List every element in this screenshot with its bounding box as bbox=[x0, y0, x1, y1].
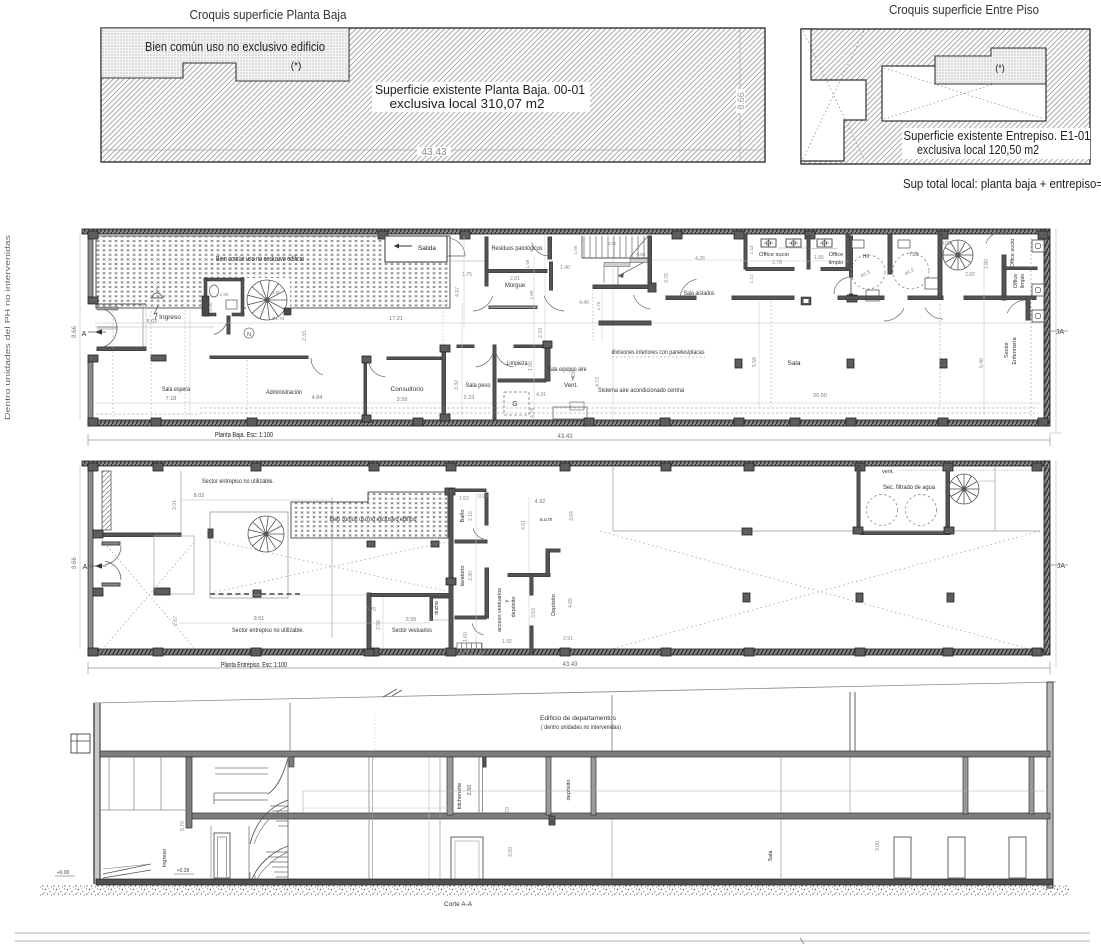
svg-text:3.55: 3.55 bbox=[406, 617, 417, 623]
svg-text:4.65: 4.65 bbox=[568, 598, 574, 608]
svg-text:4.31: 4.31 bbox=[536, 392, 546, 398]
svg-text:0.70: 0.70 bbox=[505, 807, 511, 817]
svg-text:1.40: 1.40 bbox=[560, 265, 570, 271]
svg-text:Vent.: Vent. bbox=[564, 383, 578, 389]
svg-text:5.02: 5.02 bbox=[147, 319, 158, 325]
svg-text:+0.00: +0.00 bbox=[57, 870, 70, 876]
svg-text:Enfermería: Enfermería bbox=[1012, 336, 1018, 364]
svg-text:ø1.5: ø1.5 bbox=[904, 267, 916, 277]
svg-text:Planta Entrepiso. Esc: 1:100: Planta Entrepiso. Esc: 1:100 bbox=[221, 662, 287, 669]
svg-text:2.33: 2.33 bbox=[538, 328, 544, 338]
svg-text:ducha: ducha bbox=[434, 601, 440, 615]
svg-text:2.50: 2.50 bbox=[467, 785, 473, 796]
svg-text:1.00: 1.00 bbox=[573, 245, 578, 254]
svg-text:2.78: 2.78 bbox=[772, 260, 782, 266]
svg-text:N: N bbox=[247, 332, 251, 338]
svg-text:2.91: 2.91 bbox=[563, 636, 573, 642]
svg-text:limpio: limpio bbox=[829, 260, 843, 266]
svg-text:0.80: 0.80 bbox=[272, 290, 281, 295]
svg-text:(*): (*) bbox=[995, 63, 1005, 73]
svg-text:Office sucio: Office sucio bbox=[759, 252, 789, 258]
svg-text:43.43: 43.43 bbox=[557, 434, 573, 440]
svg-text:4.84: 4.84 bbox=[312, 395, 323, 401]
svg-text:7.18: 7.18 bbox=[166, 396, 177, 402]
svg-text:3.00: 3.00 bbox=[508, 847, 514, 857]
svg-text:Ingreso: Ingreso bbox=[162, 849, 168, 867]
svg-text:2.59: 2.59 bbox=[376, 620, 382, 630]
svg-text:Croquis superficie Planta Baja: Croquis superficie Planta Baja bbox=[190, 7, 348, 22]
svg-text:Sala aislados: Sala aislados bbox=[684, 291, 715, 297]
svg-text:Sector vestuarios: Sector vestuarios bbox=[392, 627, 433, 634]
svg-text:Sec. filtrado de agua: Sec. filtrado de agua bbox=[883, 485, 936, 491]
svg-text:acceso vestuarios: acceso vestuarios bbox=[497, 588, 503, 632]
svg-text:3.76: 3.76 bbox=[664, 273, 670, 283]
svg-text:4.26: 4.26 bbox=[695, 256, 705, 262]
svg-text:1.50: 1.50 bbox=[528, 361, 534, 371]
svg-text:1.80: 1.80 bbox=[220, 292, 229, 297]
svg-text:2.23: 2.23 bbox=[464, 395, 475, 401]
svg-text:A: A bbox=[82, 331, 87, 338]
svg-text:7.25: 7.25 bbox=[909, 252, 919, 258]
svg-text:4.72: 4.72 bbox=[595, 377, 601, 387]
svg-text:Residuos patológicos: Residuos patológicos bbox=[492, 246, 543, 252]
svg-text:ø1.5: ø1.5 bbox=[860, 269, 872, 279]
svg-text:3.32: 3.32 bbox=[454, 380, 460, 390]
svg-text:43.43: 43.43 bbox=[421, 147, 446, 158]
svg-text:1.53: 1.53 bbox=[459, 496, 469, 502]
svg-text:Corte A-A: Corte A-A bbox=[444, 901, 473, 908]
svg-text:3.00: 3.00 bbox=[875, 841, 881, 851]
svg-text:depósito: depósito bbox=[511, 597, 517, 618]
svg-text:Bien común uso no exclusivo ed: Bien común uso no exclusivo edificio bbox=[216, 256, 304, 263]
svg-text:1.75: 1.75 bbox=[596, 301, 601, 310]
svg-text:4.40: 4.40 bbox=[579, 300, 589, 306]
svg-text:1.21: 1.21 bbox=[749, 274, 754, 283]
svg-text:vent.: vent. bbox=[882, 469, 894, 475]
svg-text:4.92: 4.92 bbox=[535, 499, 546, 505]
svg-text:43.43: 43.43 bbox=[562, 662, 578, 668]
svg-text:3.53: 3.53 bbox=[531, 608, 537, 618]
svg-text:4.97: 4.97 bbox=[455, 287, 461, 297]
svg-text:Depósito: Depósito bbox=[551, 594, 557, 616]
svg-text:2.33: 2.33 bbox=[302, 331, 308, 341]
svg-text:1.43: 1.43 bbox=[749, 245, 754, 254]
svg-text:Dentro unidades del PH no inte: Dentro unidades del PH no intervenidas bbox=[3, 235, 12, 420]
svg-text:0.70: 0.70 bbox=[366, 607, 376, 613]
svg-text:8.66: 8.66 bbox=[72, 557, 78, 569]
svg-text:0.90: 0.90 bbox=[478, 494, 488, 500]
svg-text:2.89: 2.89 bbox=[984, 259, 990, 269]
svg-text:JA: JA bbox=[1056, 329, 1065, 336]
svg-text:3.30: 3.30 bbox=[468, 571, 474, 581]
svg-text:H6: H6 bbox=[863, 254, 870, 260]
svg-text:1.60: 1.60 bbox=[463, 632, 469, 642]
svg-text:Sector entrepiso no utilizable: Sector entrepiso no utilizable. bbox=[232, 627, 304, 634]
svg-text:( dentro unidades no interveni: ( dentro unidades no intervenidas) bbox=[541, 725, 621, 731]
svg-text:kitchenette: kitchenette bbox=[457, 783, 463, 810]
svg-text:1.75: 1.75 bbox=[462, 272, 472, 278]
svg-text:a.u.m: a.u.m bbox=[540, 517, 553, 523]
svg-text:limpio: limpio bbox=[1020, 274, 1026, 288]
svg-text:17.21: 17.21 bbox=[389, 316, 403, 322]
svg-text:JA: JA bbox=[1057, 563, 1066, 570]
svg-text:Sala: Sala bbox=[768, 850, 774, 862]
svg-text:Office sucio: Office sucio bbox=[1010, 239, 1016, 268]
svg-text:8.66: 8.66 bbox=[72, 326, 78, 338]
svg-text:Consultorio: Consultorio bbox=[391, 386, 424, 393]
svg-text:8.66: 8.66 bbox=[736, 92, 746, 110]
svg-text:3.00: 3.00 bbox=[608, 241, 617, 246]
svg-text:G: G bbox=[512, 401, 517, 408]
svg-text:exclusiva local 310,07 m2: exclusiva local 310,07 m2 bbox=[390, 96, 545, 111]
svg-text:Bien común uso no exclusivo ed: Bien común uso no exclusivo edificio bbox=[330, 516, 417, 523]
svg-text:divisiones interiores con pane: divisiones interiores con paneles/placas bbox=[612, 350, 705, 356]
svg-text:0.80: 0.80 bbox=[637, 252, 646, 257]
svg-text:Limpieza: Limpieza bbox=[507, 360, 528, 367]
svg-text:Superficie existente Planta Ba: Superficie existente Planta Baja. 00-01 bbox=[375, 82, 585, 97]
svg-text:Ø1.70: Ø1.70 bbox=[272, 316, 285, 321]
svg-text:Sistema aire acondicionado cen: Sistema aire acondicionado central bbox=[598, 388, 684, 394]
svg-text:Sala: Sala bbox=[787, 360, 800, 367]
svg-text:2.81: 2.81 bbox=[510, 276, 520, 282]
svg-text:5.70: 5.70 bbox=[180, 821, 186, 831]
svg-text:(*): (*) bbox=[291, 61, 302, 72]
svg-text:+0.28: +0.28 bbox=[177, 868, 190, 874]
svg-text:3.59: 3.59 bbox=[397, 397, 408, 403]
svg-text:3.64: 3.64 bbox=[569, 511, 575, 521]
svg-text:y: y bbox=[504, 599, 510, 602]
svg-text:Sala peso: Sala peso bbox=[466, 382, 491, 389]
svg-text:4.55: 4.55 bbox=[571, 369, 577, 379]
svg-text:9.51: 9.51 bbox=[254, 616, 265, 622]
svg-text:Salida: Salida bbox=[418, 245, 436, 252]
svg-text:depósito: depósito bbox=[566, 780, 572, 801]
svg-text:Bien común uso no exclusivo ed: Bien común uso no exclusivo edificio bbox=[145, 39, 325, 54]
svg-text:Croquis superficie Entre Piso: Croquis superficie Entre Piso bbox=[889, 2, 1039, 17]
svg-text:1.92: 1.92 bbox=[502, 639, 512, 645]
svg-text:Sector: Sector bbox=[1004, 342, 1010, 358]
svg-text:Edificio de departamentos: Edificio de departamentos bbox=[540, 716, 616, 722]
svg-text:A: A bbox=[83, 564, 88, 571]
svg-text:Office: Office bbox=[829, 252, 843, 258]
svg-text:0.65: 0.65 bbox=[941, 241, 951, 247]
svg-text:1.85: 1.85 bbox=[814, 255, 824, 261]
svg-text:Sector entrepiso no utilizable: Sector entrepiso no utilizable. bbox=[202, 478, 274, 485]
svg-text:20.50: 20.50 bbox=[813, 393, 827, 399]
svg-text:Baño: Baño bbox=[460, 510, 466, 523]
svg-text:Office: Office bbox=[1013, 274, 1019, 288]
svg-text:3.01: 3.01 bbox=[172, 500, 178, 510]
svg-text:5.40: 5.40 bbox=[979, 358, 985, 368]
svg-text:2.82: 2.82 bbox=[965, 272, 975, 278]
svg-text:0.90: 0.90 bbox=[208, 302, 213, 311]
svg-text:Administración: Administración bbox=[266, 389, 302, 396]
svg-text:Planta Baja. Esc: 1:100: Planta Baja. Esc: 1:100 bbox=[215, 432, 273, 439]
svg-text:Sup total local: planta baja +: Sup total local: planta baja + entrepiso… bbox=[903, 176, 1101, 191]
svg-text:2.67: 2.67 bbox=[173, 616, 179, 626]
svg-text:1.60: 1.60 bbox=[529, 290, 534, 299]
svg-text:8.02: 8.02 bbox=[194, 493, 205, 499]
svg-text:1.58: 1.58 bbox=[525, 259, 530, 268]
svg-text:Sala equipos aire: Sala equipos aire bbox=[548, 367, 588, 373]
svg-text:Sala espera: Sala espera bbox=[162, 386, 190, 393]
svg-text:Superficie existente Entrepiso: Superficie existente Entrepiso. E1-01 bbox=[904, 128, 1091, 143]
svg-text:Morgue: Morgue bbox=[505, 283, 526, 289]
svg-text:5.58: 5.58 bbox=[752, 357, 758, 367]
svg-text:lavatorio: lavatorio bbox=[460, 566, 466, 587]
svg-text:exclusiva local 120,50 m2: exclusiva local 120,50 m2 bbox=[917, 142, 1039, 157]
svg-text:4.91: 4.91 bbox=[521, 520, 527, 530]
svg-text:Ingreso: Ingreso bbox=[159, 314, 181, 321]
svg-text:2.16: 2.16 bbox=[468, 511, 474, 521]
